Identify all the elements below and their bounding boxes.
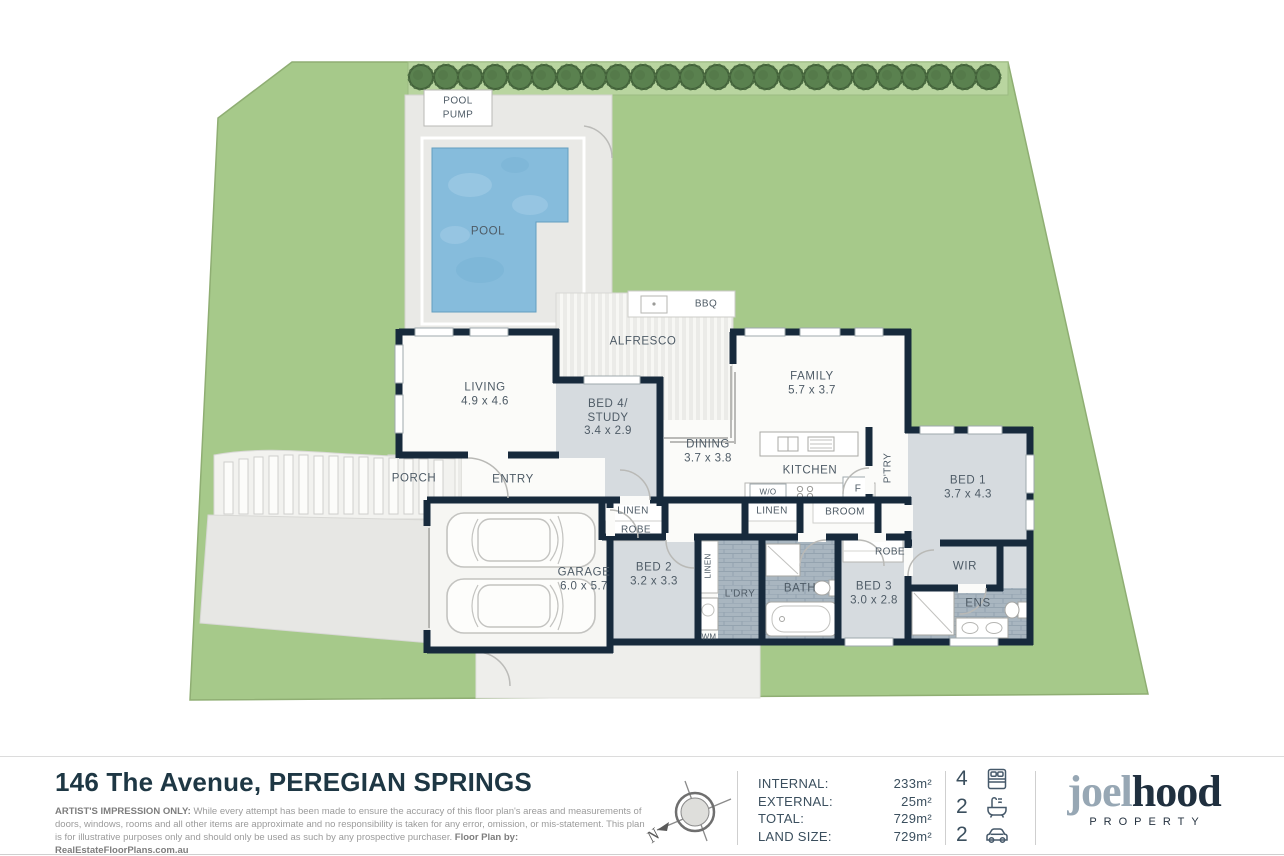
stat-internal: INTERNAL: 233m²: [758, 775, 932, 793]
footer: 146 The Avenue, PEREGIAN SPRINGS ARTIST'…: [0, 756, 1284, 856]
compass-icon: N: [645, 775, 737, 850]
car-count: 2: [956, 821, 1022, 849]
stat-land-size: LAND SIZE: 729m²: [758, 828, 932, 846]
stat-total: TOTAL: 729m²: [758, 810, 932, 828]
agency-logo: joelhood PROPERTY: [1046, 769, 1242, 828]
bathroom-count: 2: [956, 793, 1022, 821]
footer-divider-3: [1035, 771, 1036, 845]
bed-icon: [984, 766, 1010, 792]
bath-icon: [984, 794, 1010, 820]
agency-logo-wordmark: joelhood: [1046, 769, 1242, 815]
area-stats: INTERNAL: 233m² EXTERNAL: 25m² TOTAL: 72…: [758, 775, 932, 845]
car-outline-2: [447, 579, 595, 633]
floorplan-page: POOL PUMP POOL BBQ ALFRESCO LIVING 4.9 x…: [0, 0, 1284, 856]
car-icon: [984, 822, 1010, 848]
disclaimer-text: ARTIST'S IMPRESSION ONLY: While every at…: [55, 805, 647, 856]
car-outline-1: [447, 513, 595, 567]
footer-divider-1: [737, 771, 738, 845]
compass-north-letter: N: [645, 824, 665, 845]
agency-logo-tagline: PROPERTY: [1046, 816, 1242, 828]
footer-divider-2: [945, 771, 946, 845]
bedroom-count: 4: [956, 765, 1022, 793]
floor-plan-drawing: [0, 0, 1284, 756]
stat-external: EXTERNAL: 25m²: [758, 793, 932, 811]
property-address: 146 The Avenue, PEREGIAN SPRINGS: [55, 767, 532, 798]
disclaimer-lead: ARTIST'S IMPRESSION ONLY:: [55, 806, 191, 817]
feature-counts: 4 2 2: [956, 765, 1022, 849]
